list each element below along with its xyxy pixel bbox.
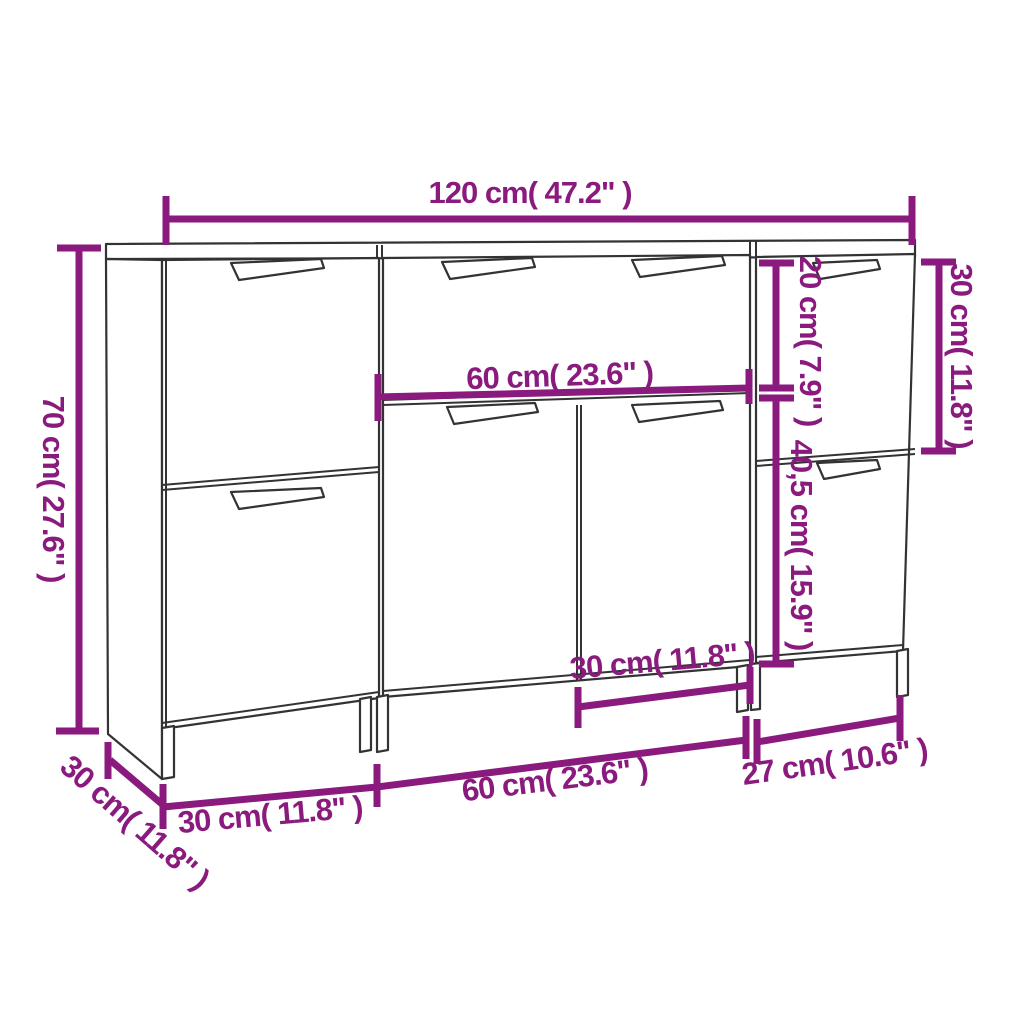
dim-label-height: 70 cm( 27.6" ) [36,396,71,583]
dim-bottom-middle-width: 60 cm( 23.6" ) [377,716,746,808]
dim-total-width: 120 cm( 47.2" ) [166,175,912,245]
dim-height: 70 cm( 27.6" ) [36,248,101,731]
dim-label-door-height: 40,5 cm( 15.9" ) [784,440,819,651]
dim-middle-door-width: 30 cm( 11.8" ) [568,635,755,728]
cabinet-left-unit [162,258,379,779]
left-unit-leg-left [162,726,174,779]
dim-label-drawer-height: 20 cm( 7.9" ) [793,256,828,427]
dim-label-right-top-height: 30 cm( 11.8" ) [944,263,979,448]
middle-unit-front [383,255,750,697]
cabinet-middle-unit [377,255,750,752]
dim-label-middle-drawer-width: 60 cm( 23.6" ) [466,355,654,396]
dim-label-total-width: 120 cm( 47.2" ) [428,175,631,210]
left-side-panel [106,259,162,779]
dim-bottom-right-width: 27 cm( 10.6" ) [740,695,930,792]
right-unit-leg-right [897,649,908,697]
dim-label-bottom-left-width: 30 cm( 11.8" ) [176,789,363,840]
middle-unit-leg-left [377,695,388,752]
left-unit-leg-right [360,697,371,752]
dim-bottom-left-width: 30 cm( 11.8" ) [163,764,377,840]
product-dimension-diagram: 120 cm( 47.2" ) 70 cm( 27.6" ) 30 cm( 11… [0,0,1024,1024]
dim-label-bottom-middle-width: 60 cm( 23.6" ) [460,751,650,809]
diagram-canvas: 120 cm( 47.2" ) 70 cm( 27.6" ) 30 cm( 11… [0,0,1024,1024]
dim-right-top-height: 30 cm( 11.8" ) [921,262,979,451]
